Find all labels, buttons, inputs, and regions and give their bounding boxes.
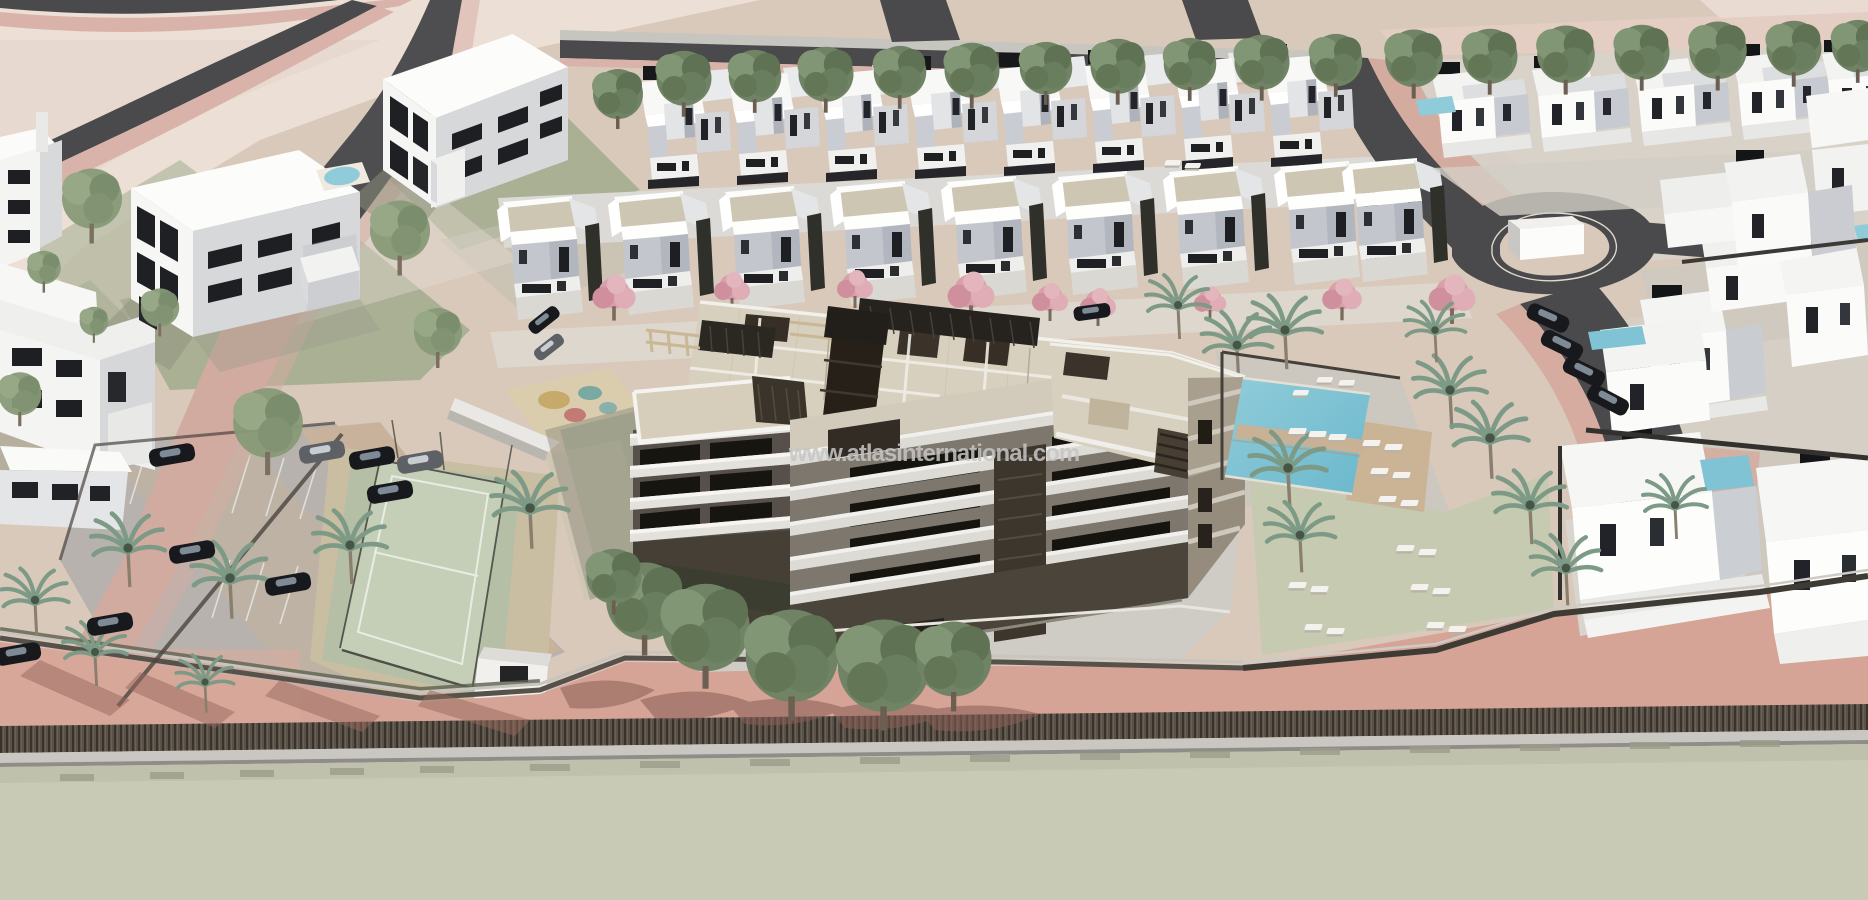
svg-text:www.atlasinternational.com: www.atlasinternational.com [788, 440, 1080, 467]
